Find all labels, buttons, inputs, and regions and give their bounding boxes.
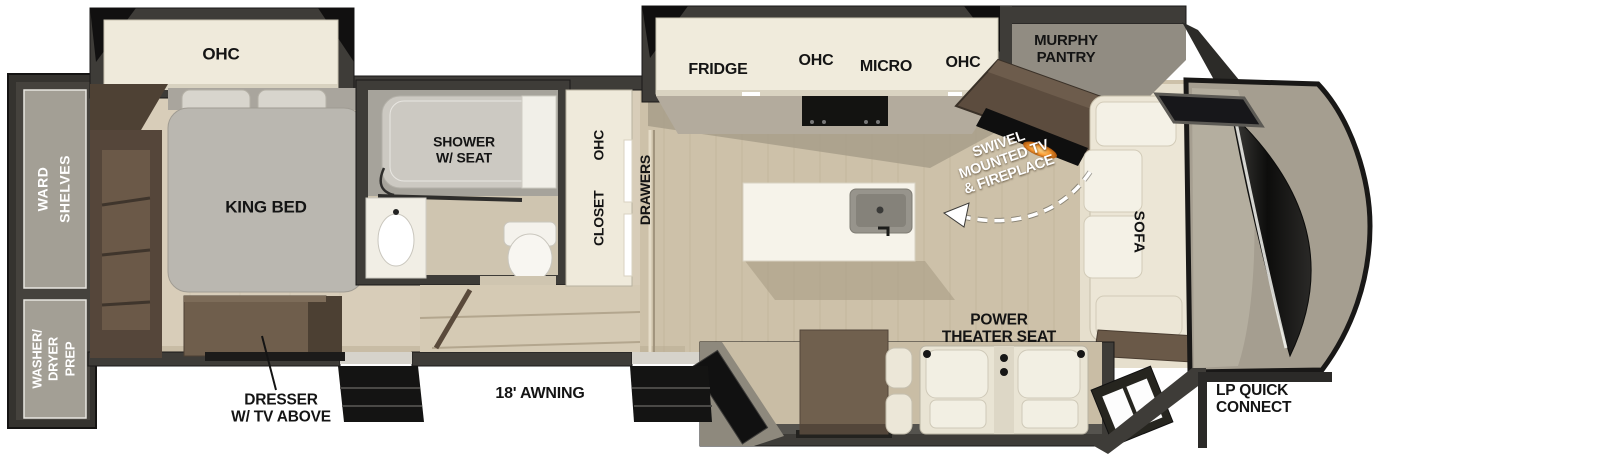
power-theater-seat-label: POWER THEATER SEAT bbox=[942, 312, 1056, 347]
lp-quick-connect-label: LP QUICK CONNECT bbox=[1216, 382, 1291, 417]
entry-threshold-1 bbox=[340, 352, 412, 364]
shower-seat bbox=[522, 96, 556, 188]
dining-chair bbox=[886, 394, 912, 434]
awning-label: 18' AWNING bbox=[495, 385, 584, 403]
living-slide bbox=[692, 330, 1173, 446]
closet-label: CLOSET bbox=[591, 190, 607, 246]
washer-dryer-prep-label: WASHER/ DRYER PREP bbox=[30, 329, 79, 388]
bedroom-furniture bbox=[90, 84, 364, 361]
front-cap bbox=[1156, 80, 1370, 372]
bedroom-ohc-label: OHC bbox=[202, 44, 239, 63]
kitchen-ohc-left-label: OHC bbox=[799, 52, 834, 70]
kitchen-ohc-right-label: OHC bbox=[946, 54, 981, 72]
fridge-label: FRIDGE bbox=[688, 61, 747, 79]
tv-above-dresser bbox=[205, 352, 345, 361]
dining-chair bbox=[886, 348, 912, 388]
sofa-label: SOFA bbox=[1130, 211, 1147, 254]
dresser bbox=[184, 296, 326, 356]
shower-seat-label: SHOWER W/ SEAT bbox=[433, 134, 495, 165]
bathroom bbox=[356, 80, 570, 285]
king-bed-label: KING BED bbox=[225, 197, 307, 216]
toilet bbox=[508, 234, 552, 282]
bath-sink bbox=[378, 214, 414, 266]
micro-label: MICRO bbox=[860, 58, 912, 76]
dresser-label: DRESSER W/ TV ABOVE bbox=[231, 392, 331, 427]
rv-floorplan: WARD SHELVES WASHER/ DRYER PREP OHC KING… bbox=[0, 0, 1600, 467]
front-skylight bbox=[1156, 94, 1262, 126]
ward-shelves-label: WARD SHELVES bbox=[32, 155, 75, 223]
murphy-pantry-label: MURPHY PANTRY bbox=[1034, 33, 1098, 67]
closet-ohc-label: CLOSET OHC bbox=[575, 130, 622, 246]
drawers-label: DRAWERS bbox=[638, 155, 654, 225]
cooktop bbox=[802, 96, 888, 126]
closet-ohc-text: OHC bbox=[591, 130, 607, 161]
dining-table bbox=[800, 330, 888, 434]
entry-threshold-2 bbox=[632, 352, 706, 364]
